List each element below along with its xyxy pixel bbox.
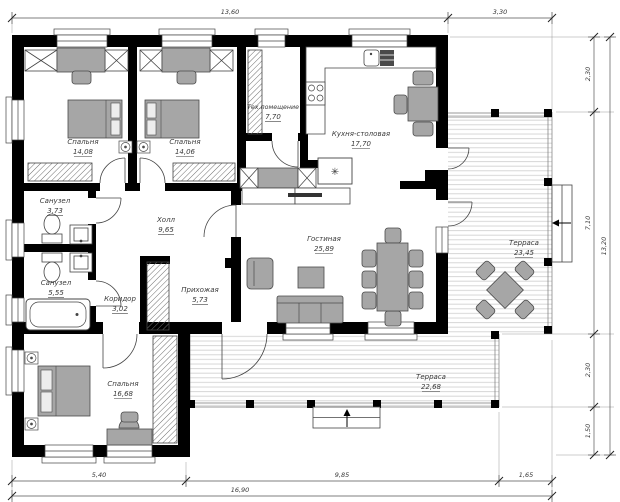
door-hall-living — [204, 205, 236, 237]
dim-right-inner — [588, 33, 600, 459]
dim-top — [8, 12, 556, 24]
svg-text:Терраса: Терраса — [509, 239, 539, 247]
nightstand-lamp-icon — [25, 352, 38, 430]
window-bedroom2-north — [159, 29, 215, 47]
dining-table-living — [362, 228, 423, 326]
svg-text:Кухня-столовая: Кухня-столовая — [332, 130, 390, 138]
window-bedroom3-south-1 — [42, 445, 96, 463]
svg-text:5,73: 5,73 — [192, 296, 208, 304]
svg-text:7,70: 7,70 — [265, 113, 281, 121]
dim-bottom-inner — [8, 475, 556, 487]
room-label-living: Гостиная 25,89 — [307, 235, 341, 254]
svg-text:17,70: 17,70 — [351, 140, 372, 148]
dim-label-right-4: 1,50 — [584, 424, 592, 438]
svg-text:14,06: 14,06 — [175, 148, 196, 156]
room-label-bedroom2: Спальня 14,06 — [169, 138, 200, 157]
svg-text:Прихожая: Прихожая — [181, 286, 219, 294]
fan-icon: ✳ — [331, 167, 339, 178]
window-bedroom3-west — [6, 347, 24, 395]
media-wall: ✳ — [240, 158, 352, 188]
svg-text:Спальня: Спальня — [169, 138, 200, 146]
room-label-corridor: Коридор 3,02 — [104, 295, 136, 314]
bed-bedroom1 — [68, 100, 122, 138]
sofa-icon — [277, 296, 343, 323]
floor-plan-drawing: ✳ — [0, 0, 620, 502]
bed-bedroom2 — [145, 100, 199, 138]
dim-label-bottom-2: 9,85 — [335, 471, 349, 479]
svg-text:Холл: Холл — [156, 216, 176, 224]
desk-bedroom3 — [107, 412, 152, 445]
door-bedroom2 — [140, 158, 165, 183]
room-label-bedroom3: Спальня 16,68 — [107, 380, 138, 399]
svg-text:3,73: 3,73 — [47, 207, 63, 215]
window-living-east — [436, 227, 448, 253]
svg-text:14,08: 14,08 — [73, 148, 94, 156]
terrace-east-steps — [552, 185, 572, 262]
svg-text:16,68: 16,68 — [113, 390, 134, 398]
door-wc1 — [96, 198, 121, 223]
svg-text:Коридор: Коридор — [104, 295, 136, 303]
dim-label-bottom-3: 1,65 — [519, 471, 533, 479]
window-living-south-1 — [283, 322, 333, 340]
floor-plan-page: ✳ — [0, 0, 620, 502]
svg-text:23,45: 23,45 — [514, 249, 535, 257]
dim-label-top-1: 13,60 — [221, 8, 240, 16]
svg-text:25,89: 25,89 — [314, 245, 335, 253]
dresser-bedroom2 — [173, 163, 235, 181]
stove-icon — [306, 82, 325, 105]
window-kitchen-north — [349, 29, 410, 47]
dim-label-right-3: 2,30 — [584, 363, 592, 377]
terrace-south-steps — [313, 407, 380, 428]
svg-text:Терраса: Терраса — [416, 373, 446, 381]
desk-bedroom2 — [162, 48, 210, 84]
door-bedroom3 — [103, 334, 137, 368]
room-label-hall: Холл 9,65 — [156, 216, 176, 235]
bathtub-icon — [26, 299, 90, 330]
kitchen-table — [394, 71, 438, 136]
svg-text:Спальня: Спальня — [107, 380, 138, 388]
room-label-wc1: Санузел 3,73 — [40, 197, 71, 216]
room-label-entry: Прихожая 5,73 — [181, 286, 219, 305]
svg-text:9,65: 9,65 — [158, 226, 174, 234]
svg-text:Спальня: Спальня — [67, 138, 98, 146]
dim-label-right-total: 13,20 — [600, 237, 608, 256]
dim-label-bottom-total: 16,90 — [231, 486, 250, 494]
terrace-south-deck — [187, 331, 499, 408]
svg-text:22,68: 22,68 — [421, 383, 442, 391]
svg-text:Тех.помещение: Тех.помещение — [247, 104, 299, 111]
armchair-icon — [247, 258, 273, 289]
window-bedroom1-west — [6, 97, 24, 143]
cabinet-tech — [248, 50, 262, 134]
room-label-kitchen: Кухня-столовая 17,70 — [332, 130, 390, 149]
dim-label-bottom-1: 5,40 — [92, 471, 106, 479]
dim-bottom-outer — [8, 490, 556, 502]
svg-text:3,02: 3,02 — [112, 305, 128, 313]
door-bedroom1 — [100, 158, 125, 183]
dim-label-right-2: 7,10 — [584, 216, 592, 230]
window-wc1-west — [6, 220, 24, 260]
coffee-table — [298, 267, 324, 288]
svg-text:Санузел: Санузел — [40, 197, 71, 205]
wardrobe-entry — [147, 262, 169, 330]
tv-console — [242, 188, 350, 204]
svg-text:Санузел: Санузел — [41, 279, 72, 287]
dim-label-top-2: 3,30 — [493, 8, 507, 16]
dresser-bedroom1 — [28, 163, 92, 181]
window-bedroom1-north — [54, 29, 110, 47]
window-tech-north — [255, 29, 288, 47]
room-label-wc2: Санузел 5,55 — [41, 279, 72, 298]
window-wc2-west — [6, 295, 24, 325]
svg-text:5,55: 5,55 — [48, 289, 64, 297]
window-bedroom3-south-2 — [104, 445, 155, 463]
dim-label-right-1: 2,30 — [584, 67, 592, 81]
desk-bedroom1 — [57, 48, 105, 84]
room-label-bedroom1: Спальня 14,08 — [67, 138, 98, 157]
door-tech — [272, 141, 298, 167]
svg-text:Гостиная: Гостиная — [307, 235, 341, 243]
bed-bedroom3 — [38, 366, 90, 416]
wardrobe-bedroom3 — [153, 336, 177, 443]
